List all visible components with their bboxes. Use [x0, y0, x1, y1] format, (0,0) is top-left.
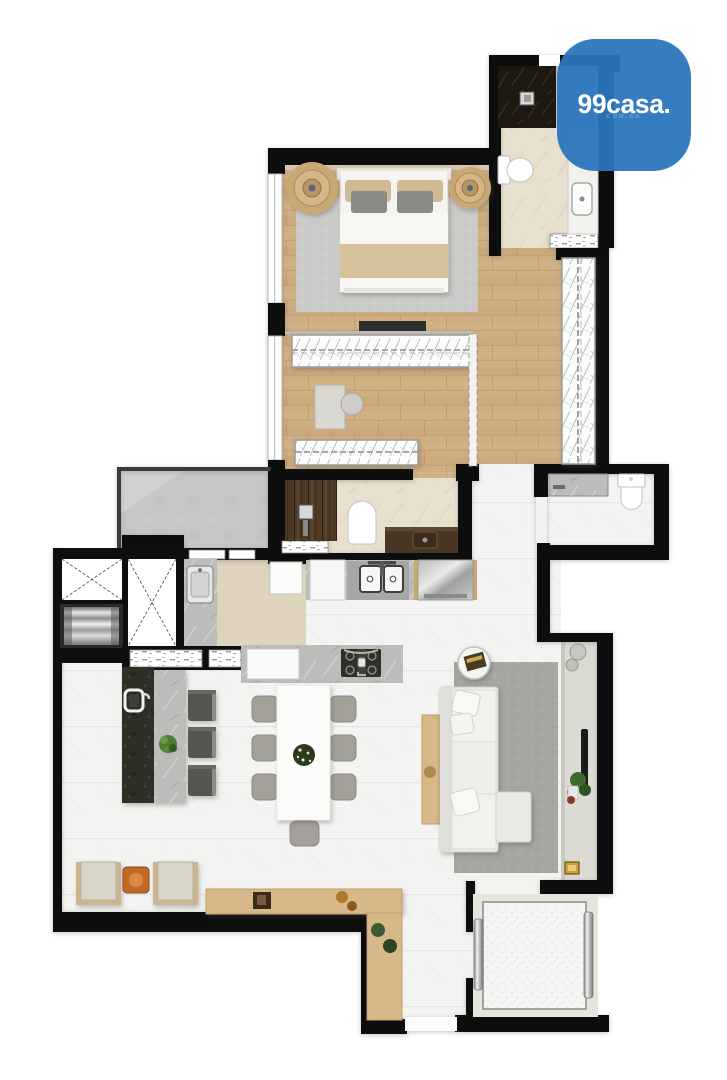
svg-text:COM.BR: COM.BR	[606, 114, 641, 120]
